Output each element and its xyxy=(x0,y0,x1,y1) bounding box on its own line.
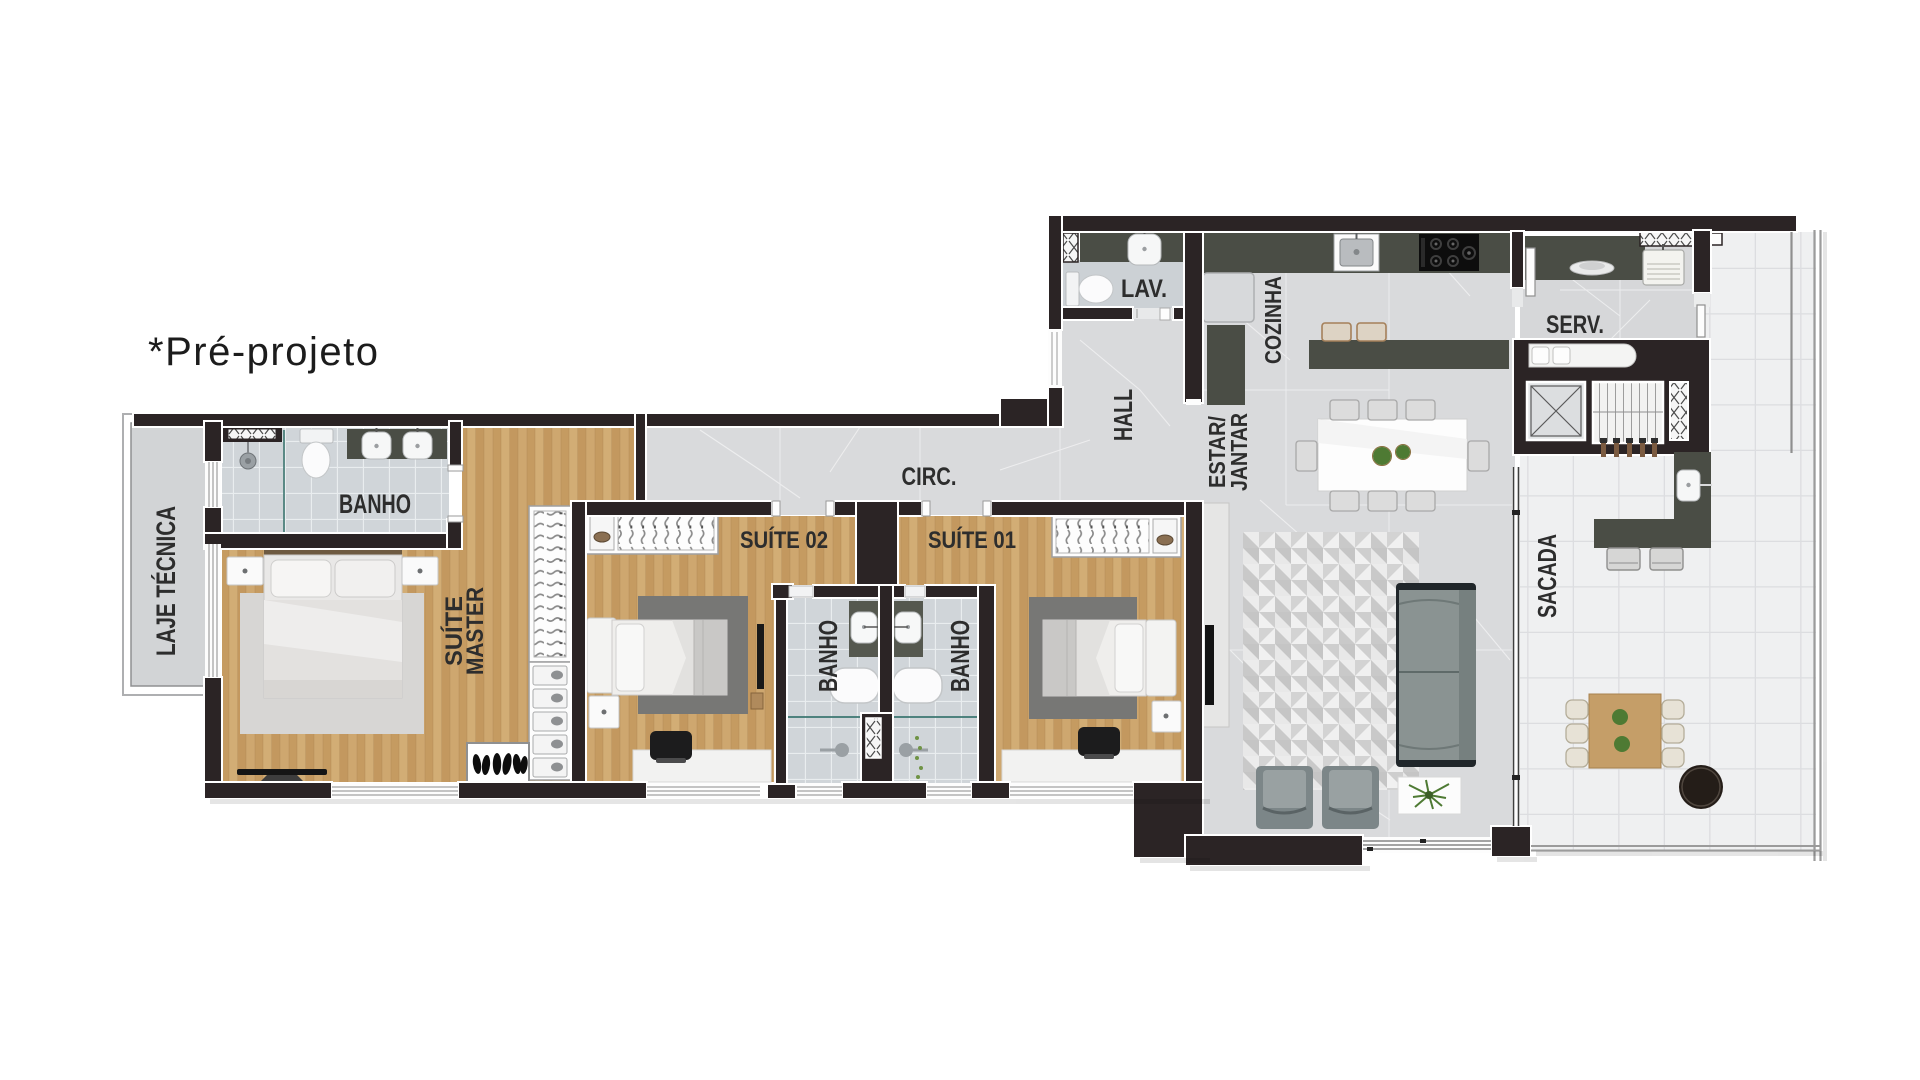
svg-text:HALL: HALL xyxy=(1108,389,1138,441)
svg-text:BANHO: BANHO xyxy=(339,489,411,519)
svg-text:*Pré-projeto: *Pré-projeto xyxy=(148,330,379,374)
svg-text:CIRC.: CIRC. xyxy=(902,463,957,491)
svg-text:LAJE TÉCNICA: LAJE TÉCNICA xyxy=(150,506,181,656)
svg-text:COZINHA: COZINHA xyxy=(1260,276,1286,364)
svg-text:LAV.: LAV. xyxy=(1121,275,1167,303)
svg-text:SUÍTE 02: SUÍTE 02 xyxy=(740,526,828,554)
svg-text:ESTAR/JANTAR: ESTAR/JANTAR xyxy=(1204,413,1252,491)
svg-text:BANHO: BANHO xyxy=(813,620,843,692)
svg-text:SERV.: SERV. xyxy=(1546,311,1604,339)
svg-text:SACADA: SACADA xyxy=(1532,534,1562,618)
svg-text:BANHO: BANHO xyxy=(945,620,975,692)
svg-text:SUÍTEMASTER: SUÍTEMASTER xyxy=(440,587,489,675)
svg-text:SUÍTE 01: SUÍTE 01 xyxy=(928,526,1016,554)
